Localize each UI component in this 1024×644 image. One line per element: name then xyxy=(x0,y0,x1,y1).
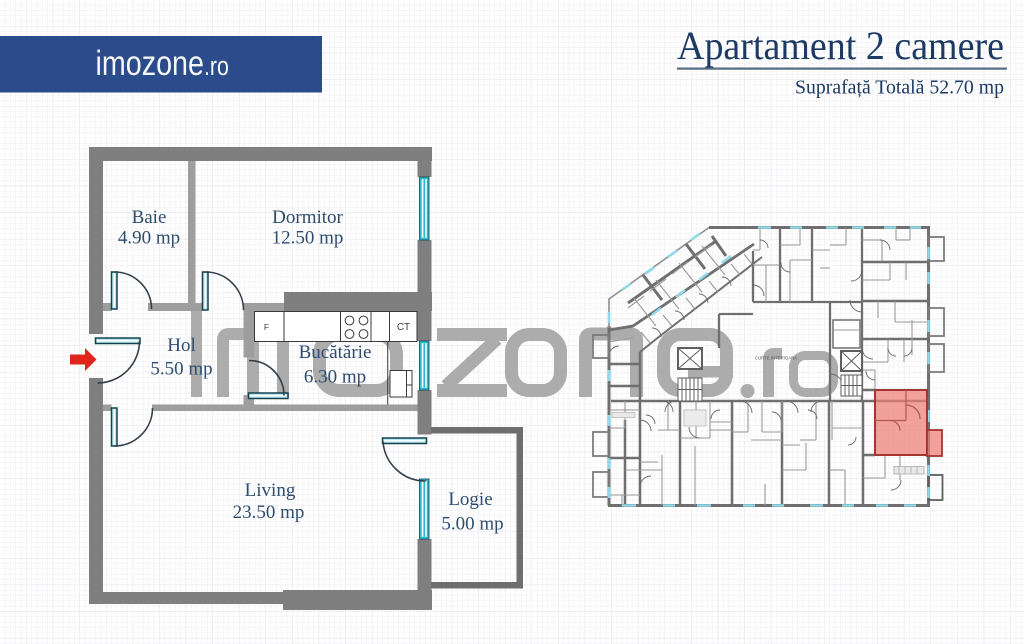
svg-text:5.50 mp: 5.50 mp xyxy=(150,359,212,380)
svg-text:Bucătărie: Bucătărie xyxy=(299,342,372,363)
svg-text:6.30 mp: 6.30 mp xyxy=(304,367,366,388)
svg-text:Living: Living xyxy=(245,480,296,501)
svg-text:Hol: Hol xyxy=(167,335,196,356)
svg-text:5.00 mp: 5.00 mp xyxy=(441,514,503,535)
svg-text:Dormitor: Dormitor xyxy=(272,207,343,228)
svg-text:F: F xyxy=(264,322,269,332)
svg-text:Logie: Logie xyxy=(448,489,492,510)
svg-text:Apartament 2 camere: Apartament 2 camere xyxy=(677,23,1004,68)
svg-text:CURTE INTERIOARA: CURTE INTERIOARA xyxy=(755,356,797,361)
svg-text:CT: CT xyxy=(397,322,410,333)
svg-text:Suprafață Totală 52.70 mp: Suprafață Totală 52.70 mp xyxy=(795,77,1004,99)
svg-text:23.50 mp: 23.50 mp xyxy=(233,502,305,523)
svg-text:Baie: Baie xyxy=(132,207,167,228)
svg-text:12.50 mp: 12.50 mp xyxy=(272,228,344,249)
svg-text:4.90 mp: 4.90 mp xyxy=(118,228,180,249)
